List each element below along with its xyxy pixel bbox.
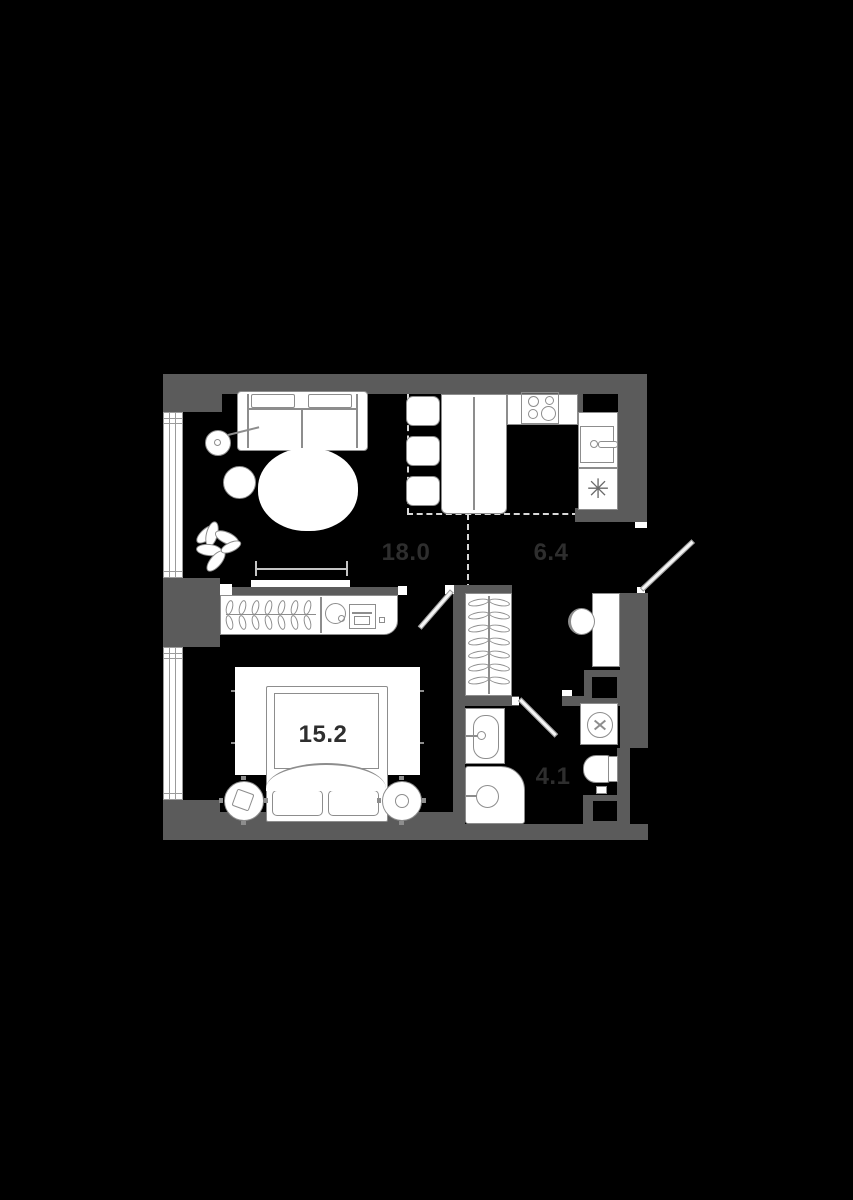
stove-burner [545,396,554,405]
wardrobe-divider [320,597,322,633]
window-living [163,412,183,578]
wall-corner-top-left [163,374,222,412]
sofa-pillow-right [308,394,352,408]
bathroom-sink [465,708,505,764]
tv-end-tick [255,561,257,576]
bar-stool [406,476,440,506]
wall-kitchen-bottom [575,508,647,522]
door-jamb-entrance-top [635,522,647,528]
tv-stand [251,580,350,587]
hall-desk [592,593,620,667]
bed-pillow [272,790,323,816]
hanger-icon [468,675,490,686]
sofa-armrest-right [356,394,358,448]
rug-tick [231,690,235,692]
nightstand-tick [377,798,381,803]
bedroom-door [418,589,454,629]
shower [465,766,525,824]
wardrobe-hangers [225,598,319,632]
hanger-icon [468,636,490,647]
hanger-icon [468,649,490,660]
door-jamb-bedroom-wall-end [220,584,232,595]
hanger-icon [276,614,286,630]
hanger-icon [489,649,511,660]
washing-machine [580,703,618,745]
shower-drain [476,785,499,808]
hanger-icon [302,614,312,630]
round-rug [258,448,358,531]
area-label-bedroom: 15.2 [294,723,352,747]
bed [266,686,388,822]
hanger-icon [237,614,247,630]
plant [192,520,248,578]
hanger-icon [468,597,490,608]
sofa-back-line [248,408,358,410]
floor-plan-canvas: ✳ [0,0,853,1200]
door-jamb-bathroom-right [562,690,572,696]
bar-table-divider [473,397,475,510]
sofa-pillow-left [251,394,295,408]
sofa-armrest-left [247,394,249,448]
nightstand-tick [241,776,246,780]
kitchen-faucet [598,441,618,448]
hanger-icon [489,610,511,621]
hanger-icon [250,614,260,630]
nightstand-tick [241,821,246,825]
sofa [237,391,368,451]
wall-closet-top [453,585,512,593]
wardrobe-rail [226,614,316,615]
wardrobe [220,595,398,635]
desk-chair [568,608,595,635]
nightstand-right [382,781,422,821]
nightstand-tick [219,798,223,803]
nightstand-tick [399,821,404,825]
shaft-hall [592,677,617,698]
window-bedroom [163,647,183,800]
stove-burner [541,406,556,421]
hanger-icon [468,610,490,621]
wall-right-kitchen [618,394,647,522]
nightstand-lamp [395,794,409,808]
wall-bottom-bathroom [455,824,648,840]
hanger-icon [289,614,299,630]
rug-tick [420,742,424,744]
door-jamb-bedroom-left [398,586,407,595]
hanger-icon [489,623,511,634]
wall-top [163,374,647,394]
nightstand-tick [264,798,268,803]
rug-tick [420,690,424,692]
stove-icon [521,392,559,424]
hanger-icon [489,636,511,647]
hanger-icon [224,614,234,630]
hanger-icon [263,614,273,630]
rug-tick [231,742,235,744]
nightstand-left [224,781,264,821]
toilet-flush [596,786,607,794]
stove-burner [528,396,539,407]
stove-burner [528,409,538,419]
dresser [349,604,376,629]
coffee-table [223,466,256,499]
area-label-bathroom: 4.1 [525,765,581,789]
sink-faucet [477,731,486,740]
tv-screen [257,568,348,570]
hanger-icon [489,662,511,673]
nightstand-tick [399,776,404,780]
wall-bedroom-divider [232,587,398,595]
hanger-icon [468,623,490,634]
dresser-knob [379,617,385,623]
toilet-tank [608,756,618,782]
nightstand-book [231,788,254,811]
hanger-icon [489,675,511,686]
wall-pier-left [163,578,220,647]
area-label-kitchen: 6.4 [521,541,581,565]
area-label-living: 18.0 [378,541,434,565]
wall-corner-bottom-left [163,800,220,840]
toilet-bowl [583,755,611,783]
bed-pillow [328,790,379,816]
sofa-seat-divider [301,408,303,448]
hanger-icon [489,597,511,608]
hall-closet [465,593,512,696]
living-zone-dashed-line [467,514,469,590]
tv-end-tick [346,561,348,576]
dresser-drawer [354,616,370,625]
bar-stool [406,396,440,426]
washer-dot-icon [338,615,345,622]
kitchen-counter-divider [579,467,617,469]
fridge-icon: ✳ [578,472,618,508]
dresser-line [352,612,372,614]
floor-lamp-bulb [214,439,221,446]
wall-bathroom-top [453,696,519,706]
bar-table [441,394,507,514]
kitchen-faucet-base [590,440,598,448]
bar-stool [406,436,440,466]
wall-right-hall [620,593,648,748]
hanger-icon [468,662,490,673]
shaft-bathroom [593,801,617,821]
nightstand-tick [422,798,426,803]
entrance-door [640,539,695,591]
kitchen-sink [580,426,614,463]
bathroom-door [518,697,558,737]
